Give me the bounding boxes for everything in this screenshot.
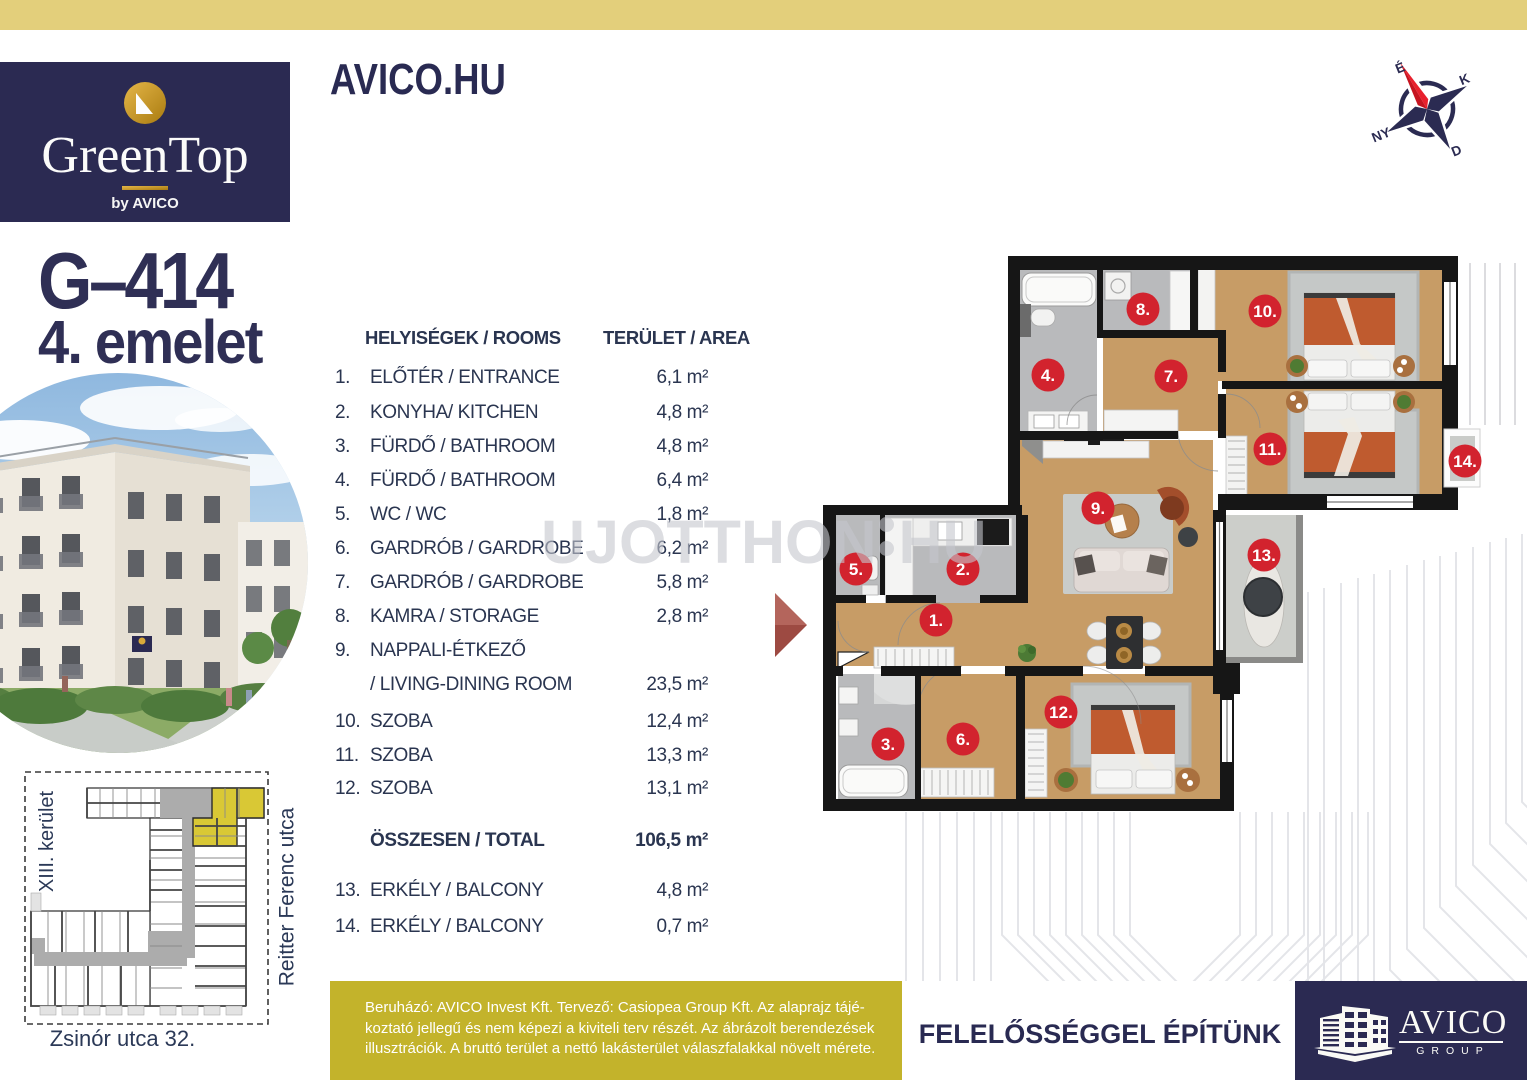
svg-text:3.: 3.	[881, 735, 895, 754]
svg-text:4.: 4.	[1041, 366, 1055, 385]
svg-text:GreenTop: GreenTop	[41, 127, 248, 184]
svg-text:by AVICO: by AVICO	[111, 195, 179, 212]
svg-text:10.: 10.	[1253, 302, 1277, 321]
svg-text:6.: 6.	[956, 730, 970, 749]
svg-text:8.: 8.	[1136, 300, 1150, 319]
svg-text:9.: 9.	[1091, 499, 1105, 518]
svg-text:14.: 14.	[1453, 452, 1477, 471]
svg-text:K: K	[1457, 71, 1472, 89]
svg-text:12.: 12.	[1049, 703, 1073, 722]
svg-text:7.: 7.	[1164, 367, 1178, 386]
svg-text:1.: 1.	[929, 611, 943, 630]
svg-text:13.: 13.	[1252, 546, 1276, 565]
svg-text:D: D	[1449, 142, 1464, 160]
svg-text:11.: 11.	[1259, 440, 1282, 459]
